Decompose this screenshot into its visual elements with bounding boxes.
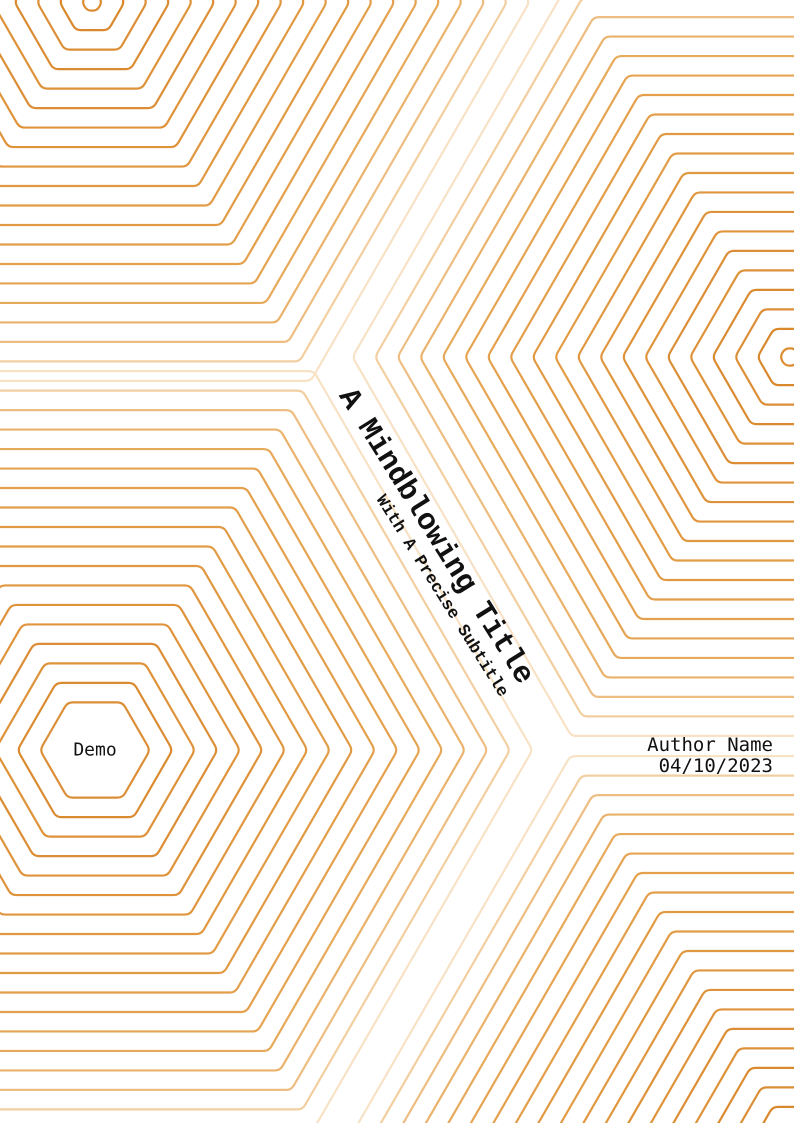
hexagon-pattern [0, 0, 794, 1123]
demo-label: Demo [73, 740, 116, 761]
hex-cluster-bottom-right [353, 756, 794, 1123]
author-name: Author Name [647, 735, 773, 756]
title-page: A Mindblowing Title With A Precise Subti… [0, 0, 794, 1123]
date: 04/10/2023 [647, 756, 773, 777]
author-block: Author Name 04/10/2023 [647, 735, 773, 777]
hex-cluster-right [354, 0, 794, 736]
